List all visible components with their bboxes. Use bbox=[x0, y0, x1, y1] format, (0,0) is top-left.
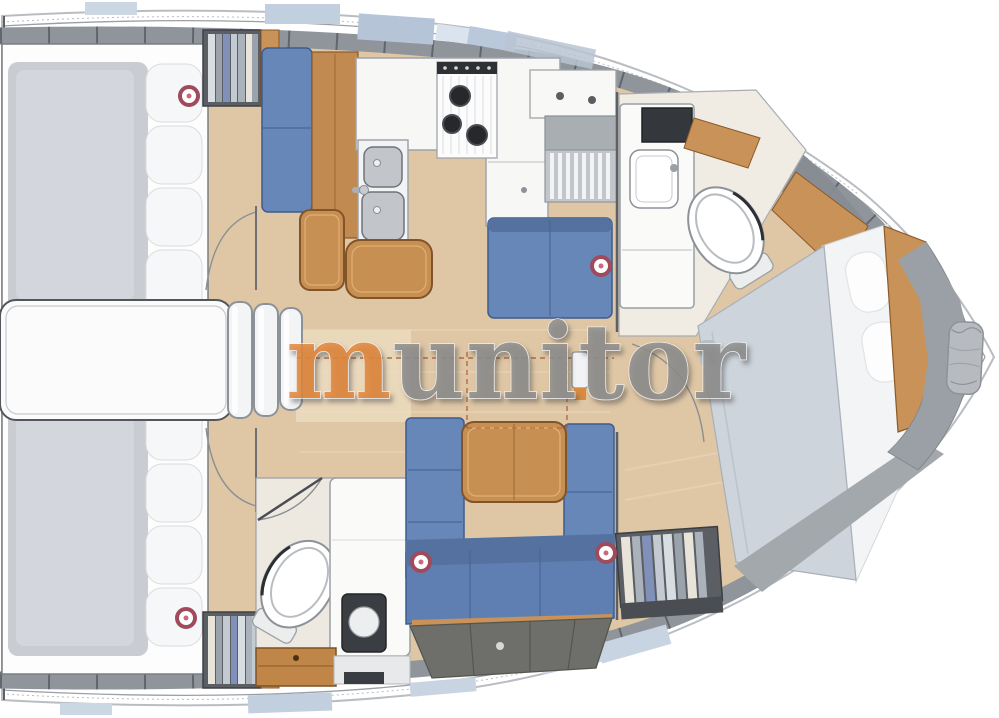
step-highlight bbox=[232, 306, 238, 414]
deck-hatch bbox=[85, 2, 137, 15]
settee-cushion bbox=[262, 48, 312, 212]
portlight-icon bbox=[180, 87, 198, 105]
portlight-icon bbox=[412, 553, 430, 571]
head-drawers-wood bbox=[256, 648, 336, 686]
watermark-prefix: m bbox=[286, 300, 392, 423]
deck-hatch bbox=[357, 13, 435, 44]
step-highlight bbox=[258, 308, 264, 412]
head-appliance bbox=[642, 108, 692, 142]
portlight-icon bbox=[177, 609, 195, 627]
step bbox=[254, 304, 278, 416]
cabinet-knob bbox=[556, 92, 564, 100]
deck-hatch bbox=[248, 693, 333, 714]
boat-floorplan: munitor bbox=[0, 0, 999, 718]
pillow bbox=[146, 188, 202, 246]
pillow bbox=[146, 126, 202, 184]
berth-mattress-sheen bbox=[16, 416, 134, 646]
sink-basin-small bbox=[364, 147, 402, 187]
stove bbox=[437, 62, 497, 158]
sink-drain bbox=[374, 207, 381, 214]
storage-lockers bbox=[410, 618, 612, 678]
pillow bbox=[146, 526, 202, 584]
upper-cabinet bbox=[530, 70, 616, 118]
pillow bbox=[146, 464, 202, 522]
cabinet-knob bbox=[588, 96, 596, 104]
faucet-knob bbox=[360, 186, 369, 195]
companionway bbox=[0, 300, 302, 420]
portlight-icon bbox=[597, 544, 615, 562]
sink-basin-large bbox=[362, 192, 404, 240]
watermark-suffix: unitor bbox=[392, 300, 746, 423]
deck-hatch bbox=[265, 4, 340, 24]
deck-hatch bbox=[60, 703, 112, 715]
head-faucet bbox=[670, 164, 678, 172]
galley-sink bbox=[352, 140, 408, 246]
portlight-icon bbox=[592, 257, 610, 275]
engine-box bbox=[0, 300, 232, 420]
watermark: munitor bbox=[286, 300, 746, 423]
dinette bbox=[406, 418, 615, 678]
step bbox=[228, 302, 252, 418]
stove-burner bbox=[467, 125, 487, 145]
sink-drain bbox=[374, 160, 381, 167]
settee-side-table bbox=[300, 210, 344, 290]
cutting-board bbox=[346, 240, 432, 298]
floorplan-canvas: munitor bbox=[0, 0, 999, 718]
berth-mattress-sheen bbox=[16, 70, 134, 300]
locker-knob bbox=[496, 642, 504, 650]
shower-kick-dark bbox=[344, 672, 384, 684]
fridge-handle bbox=[521, 187, 527, 193]
washbasin-bowl bbox=[349, 607, 379, 637]
aft-head bbox=[240, 478, 410, 686]
stove-burner bbox=[450, 86, 470, 106]
watermark-text: munitor bbox=[286, 300, 746, 423]
stove-burner bbox=[443, 115, 461, 133]
anchor-bag bbox=[946, 321, 984, 395]
counter-tray bbox=[545, 116, 617, 150]
drawer-knob bbox=[293, 655, 299, 661]
fwd-wardrobe bbox=[616, 527, 724, 620]
